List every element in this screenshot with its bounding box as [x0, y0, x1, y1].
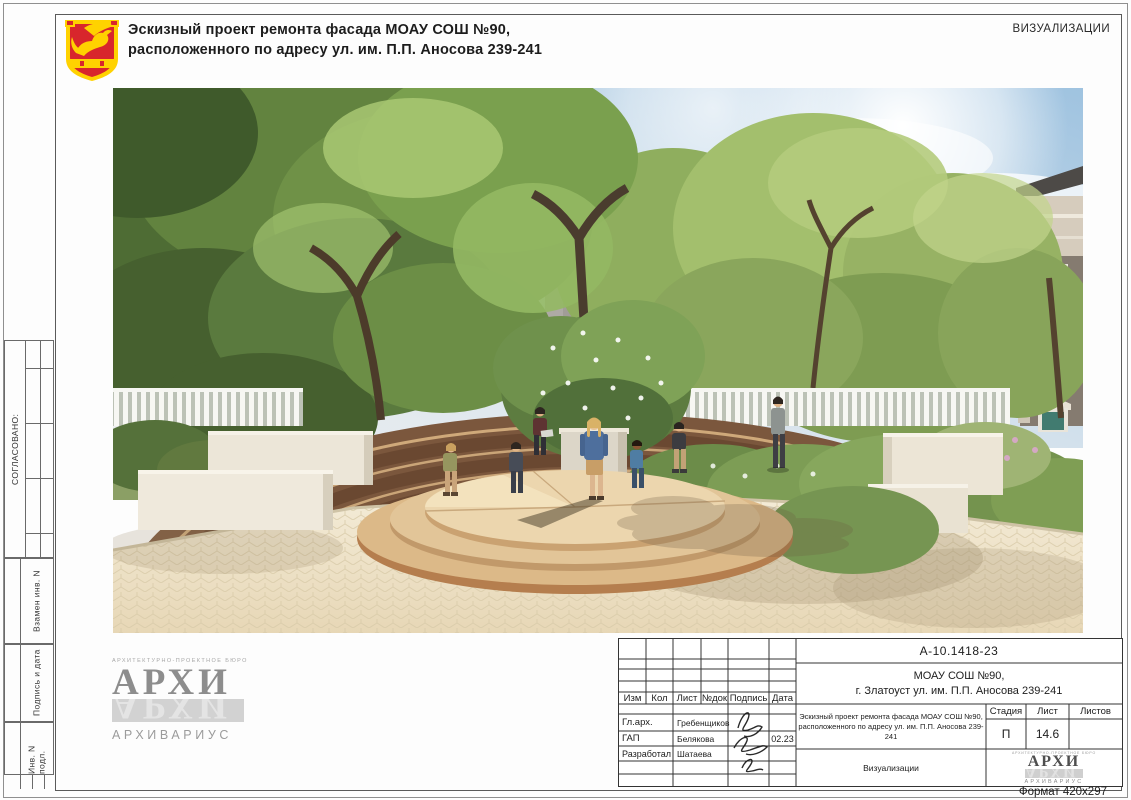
col-header-sign: Подпись: [728, 692, 769, 704]
archi-logo: АРХИ: [112, 667, 272, 699]
drawing-sheet: Эскизный проект ремонта фасада МОАУ СОШ …: [0, 0, 1131, 800]
sheet-label: Лист: [1026, 704, 1069, 719]
row-role-0: Гл.арх.: [619, 714, 673, 731]
archi-logo-small: АРХИ: [1028, 755, 1080, 769]
sign-date-label: Подпись и дата: [20, 645, 53, 721]
row-date-1: 02.23: [769, 731, 796, 746]
format-note: Формат 420x297: [960, 786, 1107, 798]
title-block-logo: АРХИТЕКТУРНО-ПРОЕКТНОЕ БЮРО АРХИ АРХИ АР…: [986, 749, 1122, 786]
object-name-line1: МОАУ СОШ №90,: [914, 669, 1005, 684]
row-role-2: Разработал: [619, 746, 673, 761]
archivarius-label: АРХИВАРИУС: [112, 728, 272, 742]
col-header-kol: Кол: [646, 692, 673, 704]
stage-label: Стадия: [986, 704, 1026, 719]
replace-inv-stamp-box: Взамен инв. N: [4, 558, 54, 644]
strip-tick: [20, 775, 21, 789]
archi-logo-small-reflection: АРХИ: [1025, 769, 1083, 778]
object-name-line2: г. Златоуст ул. им. П.П. Аносова 239-241: [856, 684, 1063, 699]
inv-no-label: Инв. N подл.: [20, 723, 53, 774]
row-role-1: ГАП: [619, 731, 673, 746]
object-name: МОАУ СОШ №90, г. Златоуст ул. им. П.П. А…: [796, 663, 1122, 704]
row-name-1: Белякова: [674, 731, 728, 746]
col-header-ndoc: №док: [701, 692, 728, 704]
strip-tick: [32, 775, 33, 789]
title-block: Изм Кол Лист №док Подпись Дата Гл.арх. Г…: [618, 638, 1123, 787]
row-name-0: Гребенщиков: [674, 714, 728, 731]
col-header-list: Лист: [673, 692, 701, 704]
sheet-title: Эскизный проект ремонта фасада МОАУ СОШ …: [128, 20, 542, 60]
row-name-2: Шатаева: [674, 746, 728, 761]
col-header-izm: Изм: [619, 692, 646, 704]
archivarius-watermark: АРХИТЕКТУРНО-ПРОЕКТНОЕ БЮРО АРХИ АРХИ АР…: [112, 658, 272, 742]
sheets-value: [1069, 719, 1122, 749]
sheet-value: 14.6: [1026, 719, 1069, 749]
archi-logo-reflection: АРХИ: [112, 699, 244, 722]
stage-value: П: [986, 719, 1026, 749]
strip-tick: [44, 775, 45, 789]
sheet-title-line2: расположенного по адресу ул. им. П.П. Ан…: [128, 40, 542, 60]
inv-no-stamp-box: Инв. N подл.: [4, 722, 54, 775]
sheet-title-line1: Эскизный проект ремонта фасада МОАУ СОШ …: [128, 20, 542, 40]
signatures: [728, 704, 769, 784]
agreed-stamp-box: СОГЛАСОВАНО:: [4, 340, 54, 558]
project-description: Эскизный проект ремонта фасада МОАУ СОШ …: [798, 705, 984, 748]
section-name: Визуализации: [796, 749, 986, 786]
replace-inv-label: Взамен инв. N: [20, 559, 53, 643]
zlatoust-coat-of-arms-icon: [64, 19, 120, 82]
doc-number: А-10.1418-23: [796, 639, 1122, 663]
sheets-label: Листов: [1069, 704, 1122, 719]
col-header-date: Дата: [769, 692, 796, 704]
agreed-label: СОГЛАСОВАНО:: [5, 341, 25, 557]
visualization-render: [113, 88, 1083, 633]
visualizations-corner-label: ВИЗУАЛИЗАЦИИ: [850, 23, 1110, 35]
sign-date-stamp-box: Подпись и дата: [4, 644, 54, 722]
